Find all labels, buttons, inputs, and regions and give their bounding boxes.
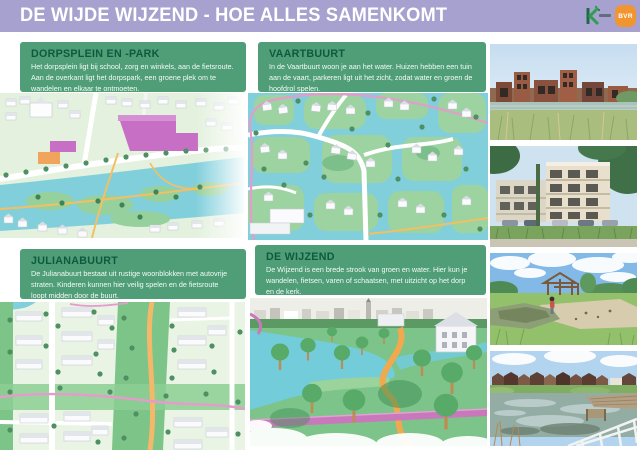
julianabuurt-map-illustration bbox=[0, 302, 245, 450]
municipality-logo bbox=[584, 4, 612, 28]
panel-julianabuurt-title: JULIANABUURT bbox=[31, 255, 229, 267]
dorpsplein-map-illustration bbox=[0, 93, 244, 238]
photo-waterfront-houses bbox=[490, 44, 637, 140]
municipality-logo-text bbox=[599, 14, 611, 17]
panel-julianabuurt: JULIANABUURT De Julianabuurt bestaat uit… bbox=[20, 249, 246, 299]
photo-apartment-building bbox=[490, 146, 637, 247]
panel-dorpsplein-title: DORPSPLEIN EN -PARK bbox=[31, 48, 229, 60]
wijzend-map-illustration bbox=[250, 298, 487, 446]
poster-title: DE WIJDE WIJZEND - HOE ALLES SAMENKOMT bbox=[20, 5, 447, 27]
panel-julianabuurt-description: De Julianabuurt bestaat uit rustige woon… bbox=[31, 269, 235, 301]
panel-vaartbuurt-description: In de Vaartbuurt woon je aan het water. … bbox=[269, 62, 475, 94]
panel-wijzend-title: DE WIJZEND bbox=[266, 251, 469, 263]
bvr-logo: BVR bbox=[615, 5, 636, 27]
header-bar: DE WIJDE WIJZEND - HOE ALLES SAMENKOMT B… bbox=[0, 0, 640, 32]
poster: DE WIJDE WIJZEND - HOE ALLES SAMENKOMT B… bbox=[0, 0, 640, 453]
panel-wijzend: DE WIJZEND De Wijzend is een brede stroo… bbox=[255, 245, 486, 295]
panel-dorpsplein-description: Het dorpsplein ligt bij school, zorg en … bbox=[31, 62, 235, 94]
logo-group: BVR bbox=[584, 0, 636, 32]
panel-vaartbuurt: VAARTBUURT In de Vaartbuurt woon je aan … bbox=[258, 42, 486, 92]
bvr-logo-text: BVR bbox=[618, 13, 633, 20]
panel-vaartbuurt-title: VAARTBUURT bbox=[269, 48, 469, 60]
vaartbuurt-map-illustration bbox=[248, 93, 488, 240]
photo-natural-playground bbox=[490, 253, 637, 345]
photo-village-pond bbox=[490, 351, 637, 446]
panel-wijzend-description: De Wijzend is een brede strook van groen… bbox=[266, 265, 475, 297]
panel-dorpsplein: DORPSPLEIN EN -PARK Het dorpsplein ligt … bbox=[20, 42, 246, 92]
